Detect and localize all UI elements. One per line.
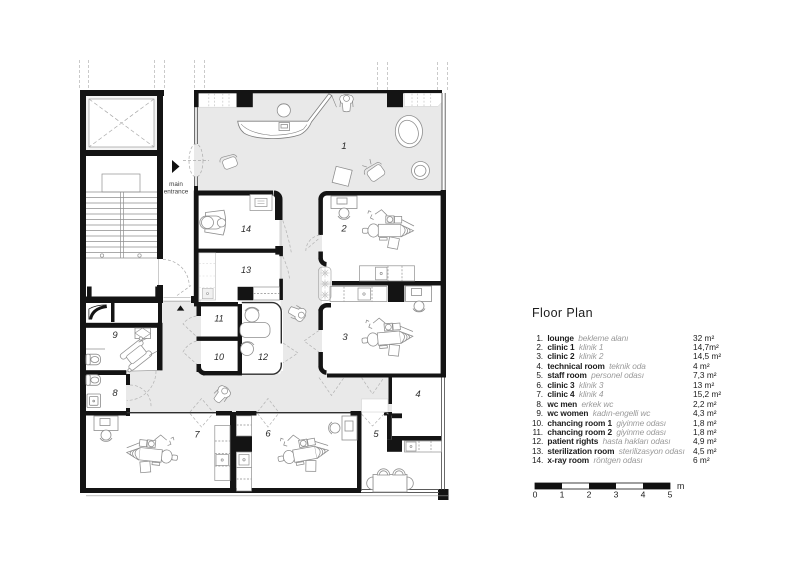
svg-text:4: 4	[641, 490, 646, 500]
svg-text:0: 0	[533, 490, 538, 500]
svg-text:2: 2	[587, 490, 592, 500]
svg-text:5: 5	[373, 429, 379, 440]
svg-text:1: 1	[560, 490, 565, 500]
svg-text:4: 4	[415, 389, 420, 400]
svg-text:14: 14	[241, 224, 251, 234]
svg-text:2: 2	[340, 224, 347, 235]
svg-text:5: 5	[668, 490, 673, 500]
svg-text:9: 9	[112, 330, 118, 341]
svg-text:12: 12	[258, 352, 268, 362]
svg-text:m: m	[677, 481, 684, 491]
svg-text:11: 11	[214, 314, 223, 324]
svg-text:3: 3	[614, 490, 619, 500]
svg-text:7: 7	[194, 430, 200, 441]
svg-text:8: 8	[112, 388, 118, 399]
svg-text:13: 13	[241, 265, 251, 275]
svg-text:entrance: entrance	[164, 189, 189, 196]
svg-text:main: main	[169, 181, 183, 188]
svg-text:6: 6	[265, 429, 271, 440]
svg-text:3: 3	[342, 332, 348, 343]
svg-text:1: 1	[341, 141, 346, 152]
svg-text:10: 10	[214, 352, 224, 362]
